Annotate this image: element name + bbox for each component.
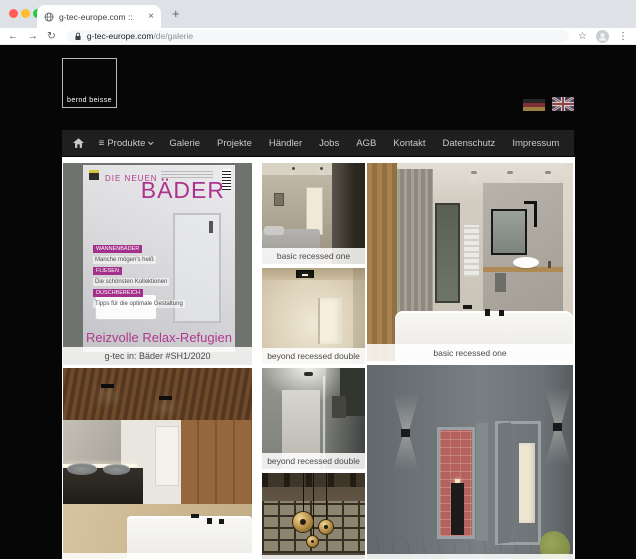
tile-caption bbox=[367, 554, 573, 559]
mirror bbox=[63, 420, 121, 464]
caption-text: beyond recessed double bbox=[267, 351, 360, 361]
wall-sconce bbox=[553, 423, 562, 431]
profile-avatar[interactable] bbox=[596, 30, 609, 43]
pendant-core bbox=[324, 525, 328, 529]
magazine-logo bbox=[89, 170, 99, 180]
new-tab-button[interactable]: + bbox=[172, 6, 180, 21]
nav-agb[interactable]: AGB bbox=[348, 138, 385, 149]
bathroom-photo bbox=[367, 163, 573, 361]
stone-sink bbox=[103, 464, 130, 475]
person-icon bbox=[597, 31, 608, 42]
reload-icon[interactable]: ↻ bbox=[47, 31, 56, 42]
web-page: bernd beisse ≡ bbox=[0, 45, 636, 559]
close-window-button[interactable] bbox=[9, 9, 18, 18]
gallery-tile-magazine[interactable]: DIE NEUEN BÄDER WANNENBÄDER Manche mögen… bbox=[63, 163, 252, 365]
curtain bbox=[397, 169, 433, 329]
recessed-light bbox=[471, 171, 477, 174]
magazine-title: BÄDER bbox=[141, 177, 225, 204]
doorway bbox=[306, 187, 323, 235]
towel-radiator bbox=[464, 225, 479, 277]
nav-galerie[interactable]: Galerie bbox=[161, 138, 209, 149]
recessed-light bbox=[304, 372, 313, 376]
url-domain: g-tec-europe.com bbox=[87, 31, 154, 41]
browser-tab[interactable]: g-tec-europe.com :: × bbox=[37, 5, 161, 28]
pendant-cord bbox=[313, 473, 314, 537]
gallery-tile-atrium[interactable] bbox=[262, 473, 365, 559]
german-flag-icon[interactable] bbox=[523, 99, 545, 111]
url-path: /de/galerie bbox=[153, 31, 193, 41]
wall-sconce bbox=[401, 429, 410, 437]
recessed-light bbox=[292, 167, 295, 170]
bathroom-photo bbox=[63, 368, 252, 559]
tab-strip: g-tec-europe.com :: × + bbox=[0, 0, 636, 28]
open-door-leaf bbox=[476, 423, 488, 542]
recessed-light bbox=[507, 171, 513, 174]
tub-faucet bbox=[191, 514, 199, 518]
nav-haendler[interactable]: Händler bbox=[260, 138, 310, 149]
recessed-light bbox=[320, 167, 323, 170]
nav-produkte[interactable]: ≡ Produkte bbox=[90, 138, 161, 149]
wood-slat-ceiling bbox=[63, 368, 252, 420]
nav-produkte-label: Produkte bbox=[107, 138, 145, 149]
hamburger-icon: ≡ bbox=[99, 138, 105, 149]
tub-faucet bbox=[463, 305, 472, 309]
nav-kontakt[interactable]: Kontakt bbox=[385, 138, 434, 149]
tub-handle bbox=[485, 309, 490, 316]
logo-text: bernd beisse bbox=[67, 97, 112, 107]
ceiling-light bbox=[159, 396, 172, 400]
mirror bbox=[491, 209, 527, 255]
uk-flag-icon[interactable] bbox=[552, 97, 574, 111]
gallery-tile-corridor-pink[interactable] bbox=[367, 365, 573, 559]
url-input[interactable]: g-tec-europe.com/de/galerie bbox=[67, 30, 569, 43]
tile-caption: beyond recessed double bbox=[262, 453, 365, 469]
ceiling-light bbox=[101, 384, 114, 388]
tub-handle bbox=[207, 518, 212, 524]
light-cone-down bbox=[543, 431, 573, 471]
tab-close-icon[interactable]: × bbox=[148, 12, 154, 22]
corridor-photo bbox=[367, 365, 573, 559]
main-navigation: ≡ Produkte Galerie Projekte Händler Jobs… bbox=[62, 130, 574, 156]
gallery-tile-bathroom-wood[interactable] bbox=[63, 368, 252, 559]
caption-text: g-tec in: Bäder #SH1/2020 bbox=[104, 351, 210, 361]
tile-caption: basic recessed one bbox=[262, 248, 365, 264]
gallery-grid: DIE NEUEN BÄDER WANNENBÄDER Manche mögen… bbox=[62, 157, 575, 559]
bottle bbox=[548, 261, 551, 268]
vessel-sink bbox=[513, 257, 539, 268]
tile-caption bbox=[262, 555, 365, 559]
nav-projekte[interactable]: Projekte bbox=[209, 138, 261, 149]
wood-wall bbox=[367, 163, 397, 361]
shower-head-shape bbox=[209, 221, 213, 233]
gallery-tile-bathroom-tub[interactable]: basic recessed one bbox=[367, 163, 573, 361]
lock-icon[interactable] bbox=[74, 32, 82, 41]
stair-silhouette bbox=[332, 396, 346, 418]
nav-home[interactable] bbox=[73, 138, 90, 148]
pillow bbox=[264, 226, 284, 235]
bookmark-star-icon[interactable]: ☆ bbox=[578, 31, 587, 42]
tub-handle bbox=[499, 310, 504, 316]
towel bbox=[495, 273, 506, 292]
globe-favicon-icon bbox=[44, 12, 54, 22]
shower-fixture bbox=[534, 201, 537, 227]
atrium-photo bbox=[262, 473, 365, 559]
caption-text: basic recessed one bbox=[277, 251, 350, 261]
stone-sink bbox=[67, 463, 97, 475]
nav-impressum[interactable]: Impressum bbox=[504, 138, 568, 149]
topic-label: DUSCHBEREICH bbox=[93, 289, 143, 297]
shower-arm bbox=[524, 201, 537, 204]
site-logo[interactable]: bernd beisse bbox=[62, 58, 117, 108]
tab-title: g-tec-europe.com :: bbox=[59, 12, 143, 22]
window bbox=[435, 203, 460, 303]
light-glow bbox=[302, 274, 308, 276]
back-icon[interactable]: ← bbox=[8, 31, 19, 42]
pendant-core bbox=[311, 540, 314, 543]
magazine-photo: DIE NEUEN BÄDER WANNENBÄDER Manche mögen… bbox=[63, 163, 252, 365]
address-bar: ← → ↻ g-tec-europe.com/de/galerie ☆ ⋮ bbox=[0, 28, 636, 45]
gallery-tile-shower[interactable]: beyond recessed double bbox=[262, 368, 365, 469]
light-cone-up bbox=[543, 381, 573, 423]
menu-kebab-icon[interactable]: ⋮ bbox=[618, 31, 628, 42]
chevron-down-icon bbox=[148, 139, 154, 145]
tile-caption: g-tec in: Bäder #SH1/2020 bbox=[63, 347, 252, 365]
browser-window: g-tec-europe.com :: × + ← → ↻ g-tec-euro… bbox=[0, 0, 636, 559]
caption-text: basic recessed one bbox=[433, 348, 506, 358]
light-cone-up bbox=[391, 387, 421, 429]
tile-caption: beyond recessed double bbox=[262, 348, 365, 364]
magazine-cover: DIE NEUEN BÄDER WANNENBÄDER Manche mögen… bbox=[83, 165, 235, 352]
home-icon bbox=[73, 138, 84, 148]
minimize-window-button[interactable] bbox=[21, 9, 30, 18]
light-cone-down bbox=[391, 437, 421, 477]
pendant-core bbox=[300, 519, 306, 525]
forward-icon[interactable]: → bbox=[28, 31, 39, 42]
url-text: g-tec-europe.com/de/galerie bbox=[87, 31, 193, 41]
tub-handle bbox=[219, 519, 224, 524]
magazine-headline: Reizvolle Relax-Refugien bbox=[83, 330, 235, 345]
gallery-tile-bedroom[interactable]: basic recessed one bbox=[262, 163, 365, 264]
gallery-tile-corridor-beige[interactable]: beyond recessed double bbox=[262, 268, 365, 364]
magazine-topic: DUSCHBEREICH Tipps für die optimale Gest… bbox=[93, 281, 201, 308]
open-door-leaf bbox=[498, 422, 511, 543]
tile-caption bbox=[63, 553, 252, 559]
nav-jobs[interactable]: Jobs bbox=[311, 138, 348, 149]
topic-text: Tipps für die optimale Gestaltung bbox=[93, 300, 185, 308]
caption-text: beyond recessed double bbox=[267, 456, 360, 466]
doorway bbox=[155, 426, 179, 486]
nav-datenschutz[interactable]: Datenschutz bbox=[434, 138, 504, 149]
pendant-cord bbox=[303, 473, 304, 513]
tile-caption: basic recessed one bbox=[367, 344, 573, 361]
pendant-cord bbox=[326, 473, 327, 521]
topic-label: FLIESEN bbox=[93, 267, 122, 275]
inner-doorway bbox=[519, 443, 535, 523]
language-switcher bbox=[523, 97, 574, 111]
wall-art bbox=[274, 193, 284, 206]
recessed-light bbox=[545, 171, 551, 174]
topic-label: WANNENBÄDER bbox=[93, 245, 142, 253]
pedestal bbox=[451, 483, 464, 535]
doorway bbox=[318, 298, 342, 344]
